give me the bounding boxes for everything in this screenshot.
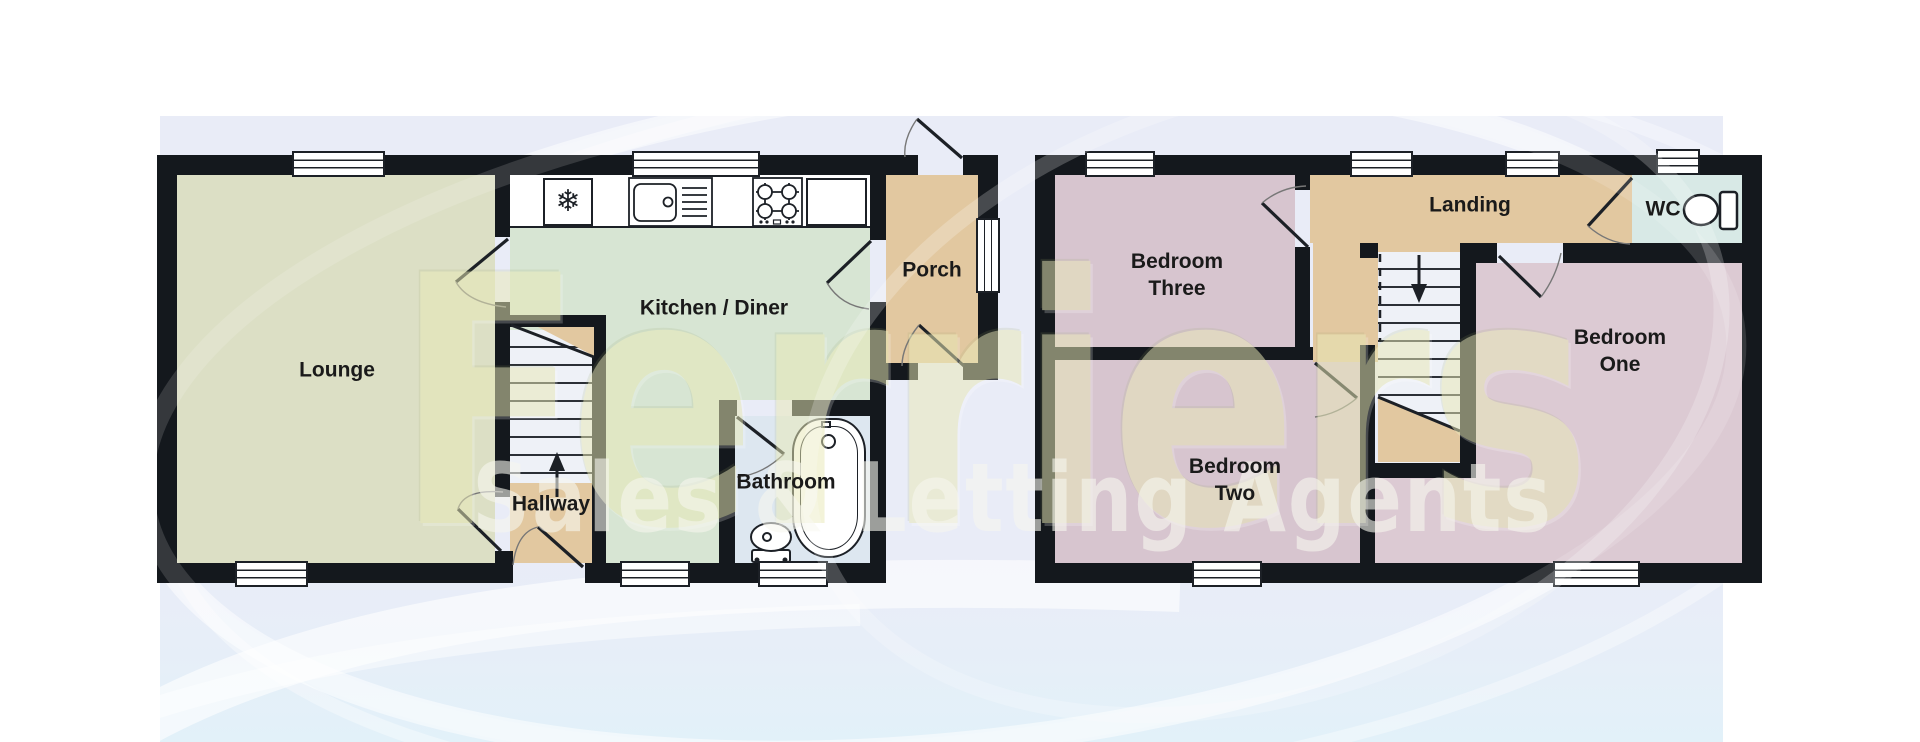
window [1553,561,1640,587]
window [1505,151,1560,177]
room-landing [1378,243,1460,252]
room-label-kitchen: Kitchen / Diner [640,296,788,323]
wall [1295,175,1310,190]
wall [1035,155,1055,583]
room-label-bathroom: Bathroom [736,470,835,497]
room-bedroom-one [1476,263,1742,563]
floorplan-canvas: ❄ [0,0,1920,742]
window [1350,151,1413,177]
wall [1055,347,1313,360]
room-label-landing: Landing [1429,193,1511,220]
wall [1295,247,1310,347]
wall [1035,563,1762,583]
window [1192,561,1262,587]
wall [1563,243,1742,263]
room-label-hallway: Hallway [512,492,590,519]
room-label-bedroom-three: Bedroom Three [1118,249,1236,303]
window [1656,149,1700,175]
room-label-wc: WC [1646,197,1681,224]
room-label-lounge: Lounge [299,358,375,385]
room-label-bedroom-one: Bedroom One [1561,325,1679,379]
wall [1360,463,1476,478]
wall [1460,243,1476,478]
room-label-bedroom-two: Bedroom Two [1176,454,1294,508]
staircase-down [1378,252,1460,463]
room-bedroom-one [1375,478,1476,563]
wall [1360,243,1378,258]
window [1085,151,1155,177]
wall [1742,155,1762,583]
room-label-porch: Porch [902,258,962,285]
